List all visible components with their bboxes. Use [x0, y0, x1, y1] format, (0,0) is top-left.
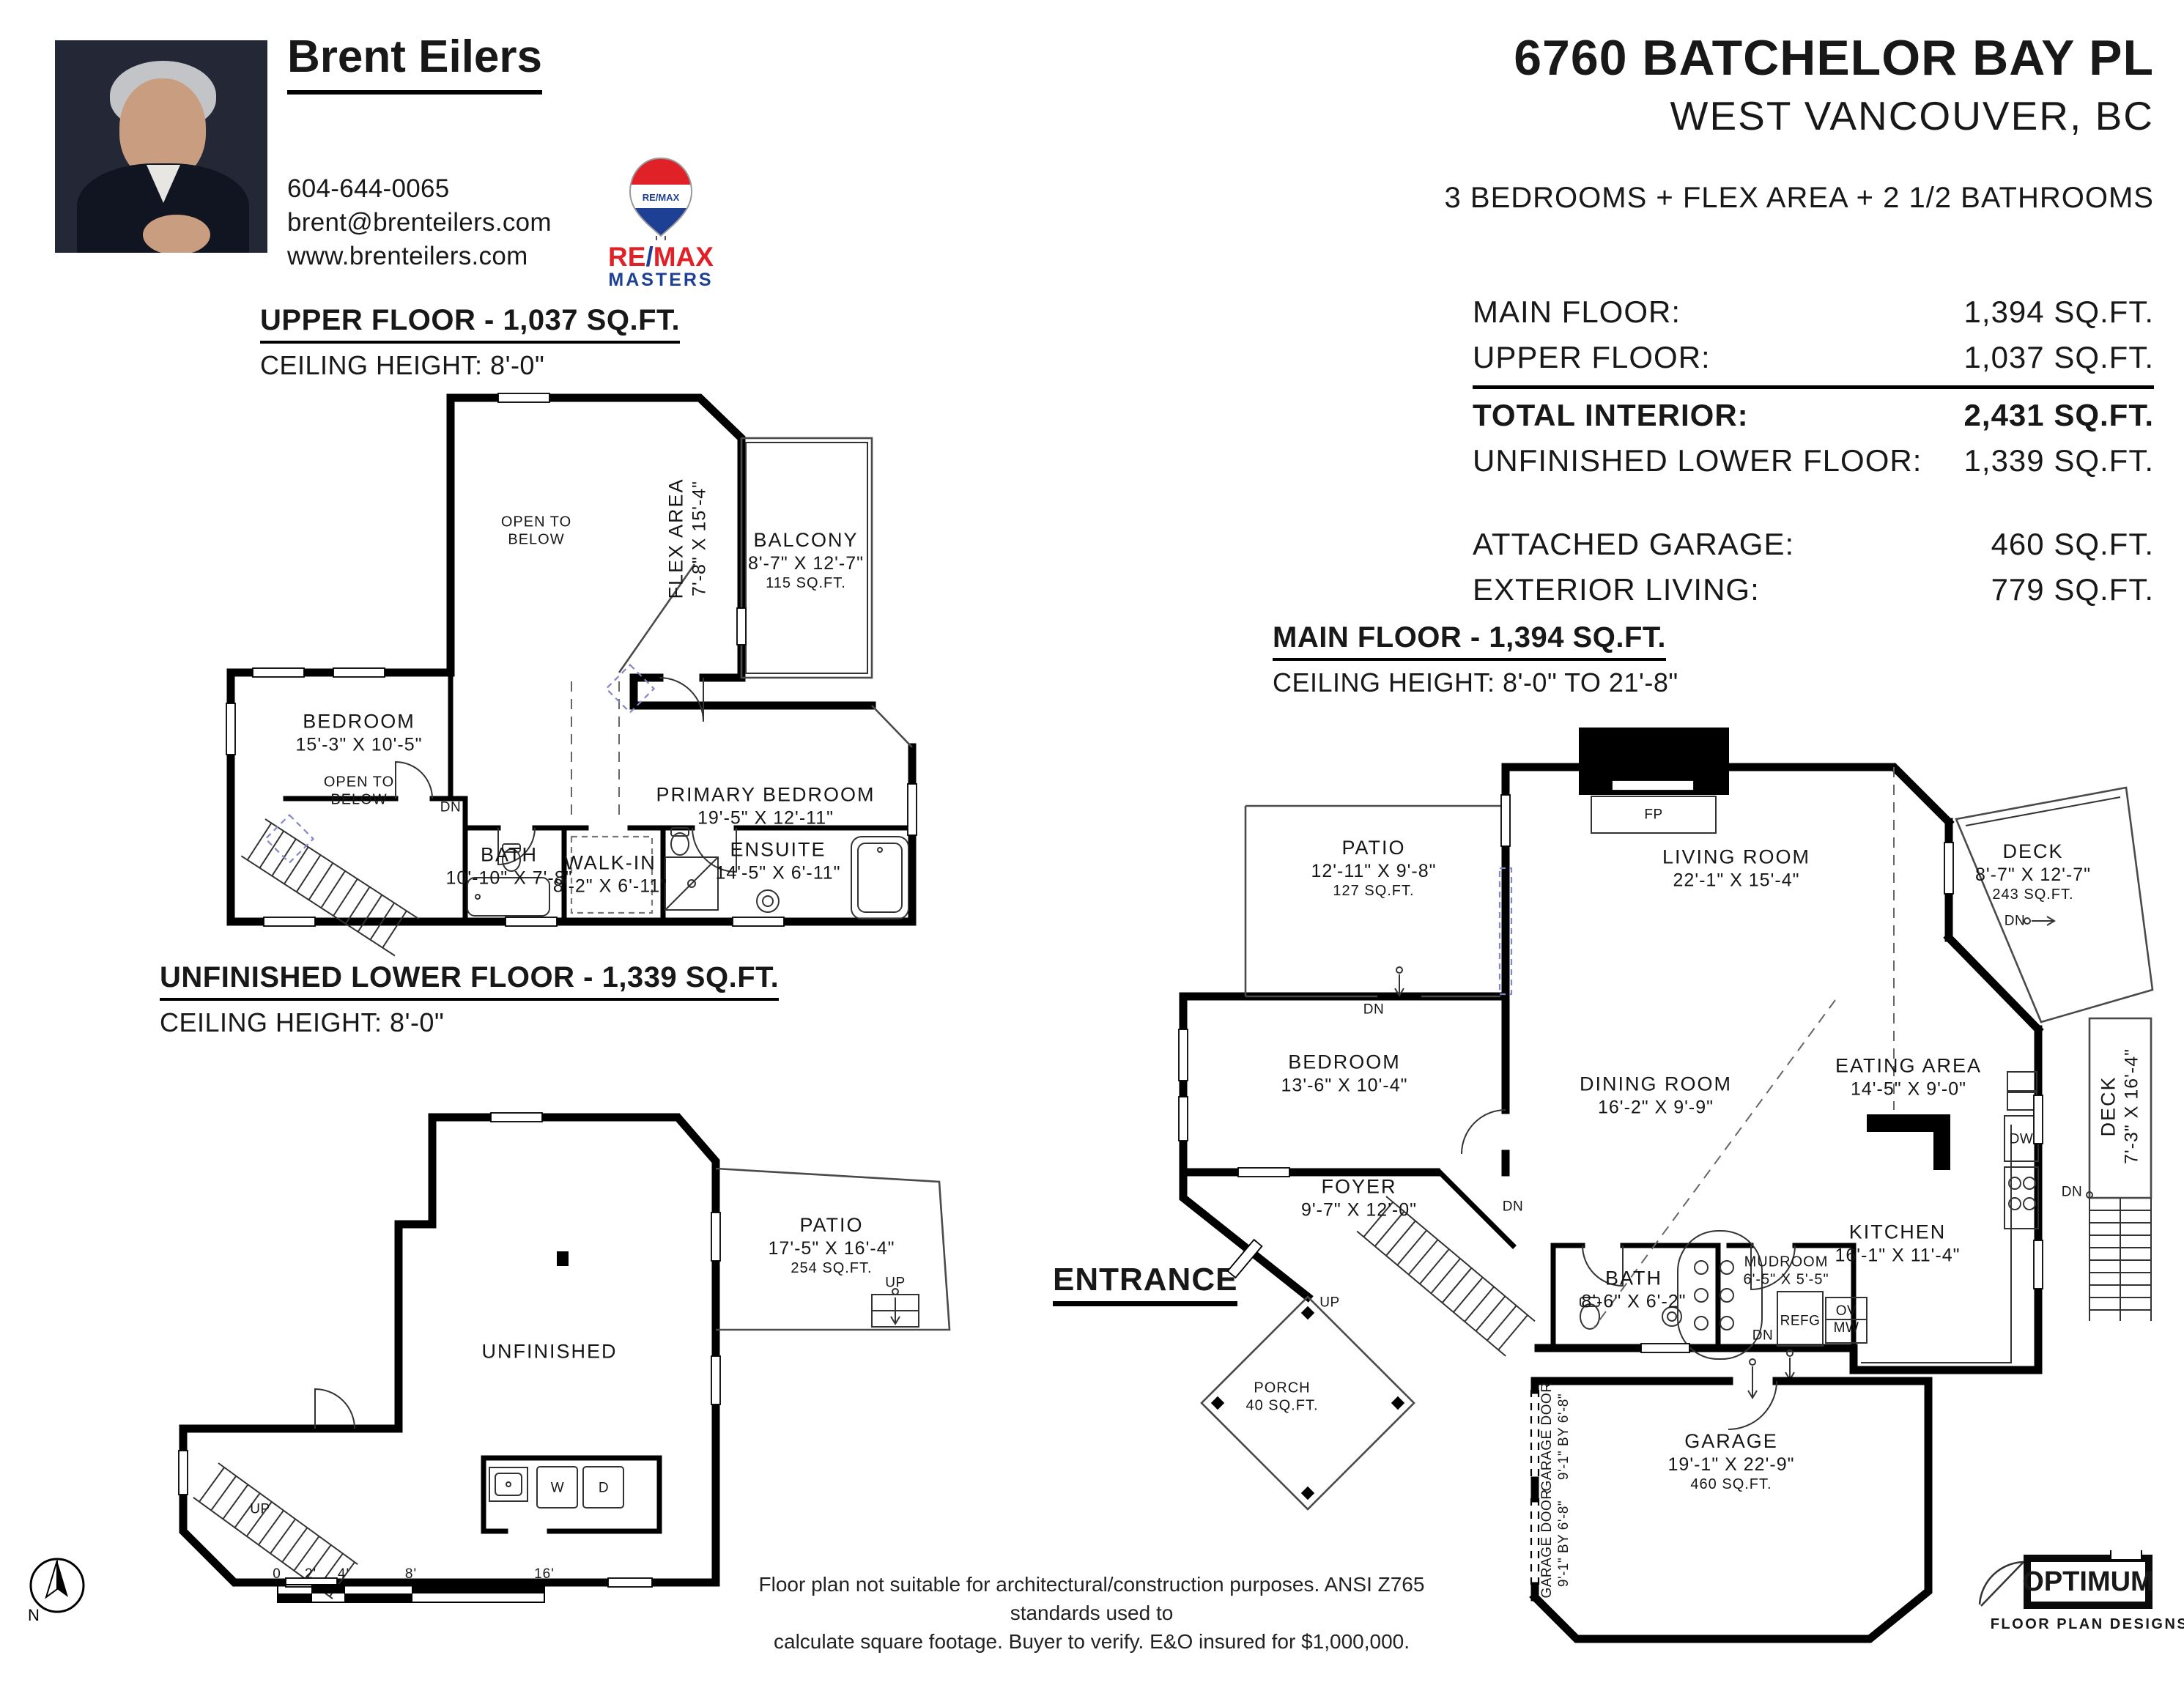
area-label: TOTAL INTERIOR: [1473, 398, 1749, 433]
area-row: EXTERIOR LIVING:779 SQ.FT. [1473, 567, 2154, 612]
room-label: EATING AREA14'-5" X 9'-0" [1835, 1054, 1982, 1100]
stairs-upper [241, 819, 418, 955]
room-label: DECK7'-3" X 16'-4" [2096, 1048, 2142, 1164]
svg-text:RE/MAX: RE/MAX [643, 192, 680, 203]
shower-icon [665, 857, 718, 910]
room-label: PATIO12'-11" X 9'-8"127 SQ.FT. [1311, 836, 1436, 900]
property-summary: 3 BEDROOMS + FLEX AREA + 2 1/2 BATHROOMS [1445, 182, 2154, 215]
area-row: UNFINISHED LOWER FLOOR:1,339 SQ.FT. [1473, 438, 2154, 484]
deck-outline [1956, 788, 2152, 1022]
dn-arrow [2024, 917, 2054, 925]
lower-floor-title: UNFINISHED LOWER FLOOR - 1,339 SQ.FT. [160, 961, 779, 1001]
area-table: MAIN FLOOR:1,394 SQ.FT.UPPER FLOOR:1,037… [1473, 289, 2154, 612]
room-label: DN [1363, 1001, 1384, 1018]
room-label: W [551, 1479, 564, 1496]
floorplan-main: FPPATIO12'-11" X 9'-8"127 SQ.FT.DNLIVING… [1172, 685, 2154, 1645]
floorplan-lower: PATIO17'-5" X 16'-4"254 SQ.FT.UPUNFINISH… [139, 1066, 960, 1623]
room-label: DW [2010, 1130, 2034, 1147]
upper-floor-title: UPPER FLOOR - 1,037 SQ.FT. [260, 304, 680, 344]
upper-floor-header: UPPER FLOOR - 1,037 SQ.FT. CEILING HEIGH… [260, 304, 680, 381]
room-label: ENSUITE14'-5" X 6'-11" [715, 837, 840, 884]
property-address: 6760 BATCHELOR BAY PL [1445, 29, 2154, 86]
garage-entry-arrow [1748, 1359, 1757, 1398]
room-label: UP [1319, 1294, 1339, 1311]
remax-balloon-icon: RE/MAX [595, 155, 727, 242]
patio-outline [1245, 806, 1500, 996]
area-value: 779 SQ.FT. [1991, 572, 2154, 607]
optimum-subtitle: FLOOR PLAN DESIGNS [1987, 1616, 2184, 1633]
area-label: UPPER FLOOR: [1473, 340, 1711, 375]
room-label: OVMW [1834, 1303, 1859, 1336]
room-label: DECK8'-7" X 12'-7"243 SQ.FT. [1975, 840, 2091, 904]
remax-wordmark: RE/MAX [595, 242, 727, 273]
area-label: MAIN FLOOR: [1473, 295, 1681, 330]
door-arc [315, 1389, 355, 1429]
room-label: BEDROOM13'-6" X 10'-4" [1281, 1050, 1408, 1096]
scale-tick: 8' [405, 1566, 417, 1582]
optimum-door-icon [1971, 1558, 2029, 1624]
optimum-logo: OPTIMUM [2024, 1555, 2152, 1609]
room-label: GARAGE DOOR9'-1" BY 6'-8" [1539, 1382, 1572, 1491]
room-label: OPEN TOBELOW [324, 774, 394, 810]
area-row: UPPER FLOOR:1,037 SQ.FT. [1473, 335, 2154, 389]
stair-up-patio [872, 1289, 919, 1327]
dn-arrow [1395, 967, 1404, 996]
room-label: UNFINISHED [481, 1340, 617, 1364]
room-label: DN [1752, 1327, 1773, 1344]
hall-dashed-lines [571, 681, 619, 821]
kitchen-sink-icon [2007, 1072, 2037, 1091]
remax-logo: RE/MAX RE/MAX MASTERS [595, 155, 727, 287]
agent-email: brent@brenteilers.com [287, 208, 552, 237]
room-label: REFG [1780, 1312, 1821, 1329]
agent-phone: 604-644-0065 [287, 174, 450, 204]
room-label: PATIO17'-5" X 16'-4"254 SQ.FT. [769, 1213, 895, 1278]
black-wall-L [1867, 1114, 1950, 1170]
area-value: 1,339 SQ.FT. [1964, 443, 2154, 478]
room-label: KITCHEN16'-1" X 11'-4" [1835, 1220, 1960, 1266]
stove-icon [2005, 1167, 2038, 1229]
area-row: TOTAL INTERIOR:2,431 SQ.FT. [1473, 389, 2154, 438]
room-label: FLEX AREA7'-8" X 15'-4" [664, 478, 710, 599]
room-label: FOYER9'-7" X 12'-0" [1301, 1174, 1417, 1221]
post [557, 1251, 569, 1266]
floorplan-main-drawing [1172, 685, 2154, 1645]
area-value: 1,394 SQ.FT. [1964, 295, 2154, 330]
room-label: UP [885, 1274, 905, 1291]
room-label: BALCONY8'-7" X 12'-7"115 SQ.FT. [748, 528, 864, 593]
optimum-window-detail [2110, 1550, 2142, 1559]
scale-tick: 2' [305, 1566, 317, 1582]
compass-north-icon: N [22, 1553, 95, 1626]
floorplan-flyer: Brent Eilers 604-644-0065 brent@brenteil… [0, 0, 2184, 1688]
scale-tick: 4' [338, 1566, 349, 1582]
room-label: DN [2005, 912, 2025, 929]
area-label: ATTACHED GARAGE: [1473, 527, 1794, 562]
room-label: GARAGE DOOR9'-1" BY 6'-8" [1539, 1489, 1572, 1598]
property-header: 6760 BATCHELOR BAY PL WEST VANCOUVER, BC… [1445, 29, 2154, 215]
room-label: PORCH40 SQ.FT. [1245, 1380, 1318, 1415]
property-city: WEST VANCOUVER, BC [1445, 92, 2154, 139]
room-label: LIVING ROOM22'-1" X 15'-4" [1662, 845, 1810, 891]
laundry-sink-icon [489, 1467, 528, 1501]
room-label: DN [440, 799, 461, 815]
area-value: 460 SQ.FT. [1991, 527, 2154, 562]
garage-walls [1531, 1359, 1928, 1639]
area-value: 2,431 SQ.FT. [1964, 398, 2154, 433]
north-letter: N [28, 1606, 40, 1624]
room-label: FP [1644, 806, 1662, 823]
upper-floor-ceiling: CEILING HEIGHT: 8'-0" [260, 350, 680, 381]
lower-floor-header: UNFINISHED LOWER FLOOR - 1,339 SQ.FT. CE… [160, 961, 779, 1038]
room-label: BEDROOM15'-3" X 10'-5" [296, 709, 423, 755]
optimum-name: OPTIMUM [2022, 1566, 2153, 1598]
skylight-marker [265, 815, 313, 862]
room-label: BATH8'-6" X 6'-2" [1581, 1266, 1686, 1312]
disclaimer-line: calculate square footage. Buyer to verif… [725, 1627, 1458, 1656]
agent-website: www.brenteilers.com [287, 242, 528, 271]
sink-icon [757, 890, 779, 912]
room-label: WALK-IN8'-2" X 6'-11" [553, 851, 667, 897]
room-label: PRIMARY BEDROOM19'-5" X 12'-11" [656, 782, 875, 829]
room-label: D [599, 1479, 609, 1496]
room-label: MUDROOM6'-5" X 5'-5" [1743, 1254, 1829, 1289]
room-label: GARAGE19'-1" X 22'-9"460 SQ.FT. [1668, 1429, 1795, 1494]
area-spacer [1473, 484, 2154, 522]
room-label: DN [1503, 1198, 1523, 1215]
mudroom-dn-arrow [1785, 1350, 1794, 1380]
disclaimer-line: Floor plan not suitable for architectura… [725, 1570, 1458, 1627]
area-value: 1,037 SQ.FT. [1964, 340, 2154, 375]
area-row: MAIN FLOOR:1,394 SQ.FT. [1473, 289, 2154, 335]
room-label: DN [2062, 1183, 2082, 1200]
area-row: ATTACHED GARAGE:460 SQ.FT. [1473, 522, 2154, 567]
agent-photo [55, 40, 267, 253]
room-label: UP [250, 1500, 270, 1517]
room-label: DINING ROOM16'-2" X 9'-9" [1580, 1072, 1732, 1118]
main-floor-title: MAIN FLOOR - 1,394 SQ.FT. [1273, 621, 1666, 661]
deck-stairs [2087, 1192, 2151, 1321]
scale-bar: 02'4'8'16' [277, 1566, 570, 1610]
room-label: OPEN TOBELOW [501, 514, 571, 549]
area-label: EXTERIOR LIVING: [1473, 572, 1760, 607]
bathtub-icon [851, 837, 908, 919]
scale-tick: 16' [534, 1566, 555, 1582]
remax-masters-label: MASTERS [595, 270, 727, 291]
lower-floor-ceiling: CEILING HEIGHT: 8'-0" [160, 1007, 779, 1038]
floorplan-upper: OPEN TOBELOWFLEX AREA7'-8" X 15'-4"BALCO… [220, 388, 930, 960]
disclaimer: Floor plan not suitable for architectura… [725, 1570, 1458, 1656]
scale-tick: 0 [273, 1566, 281, 1582]
area-label: UNFINISHED LOWER FLOOR: [1473, 443, 1922, 478]
toilet-icon [671, 828, 689, 855]
agent-name: Brent Eilers [287, 31, 542, 95]
